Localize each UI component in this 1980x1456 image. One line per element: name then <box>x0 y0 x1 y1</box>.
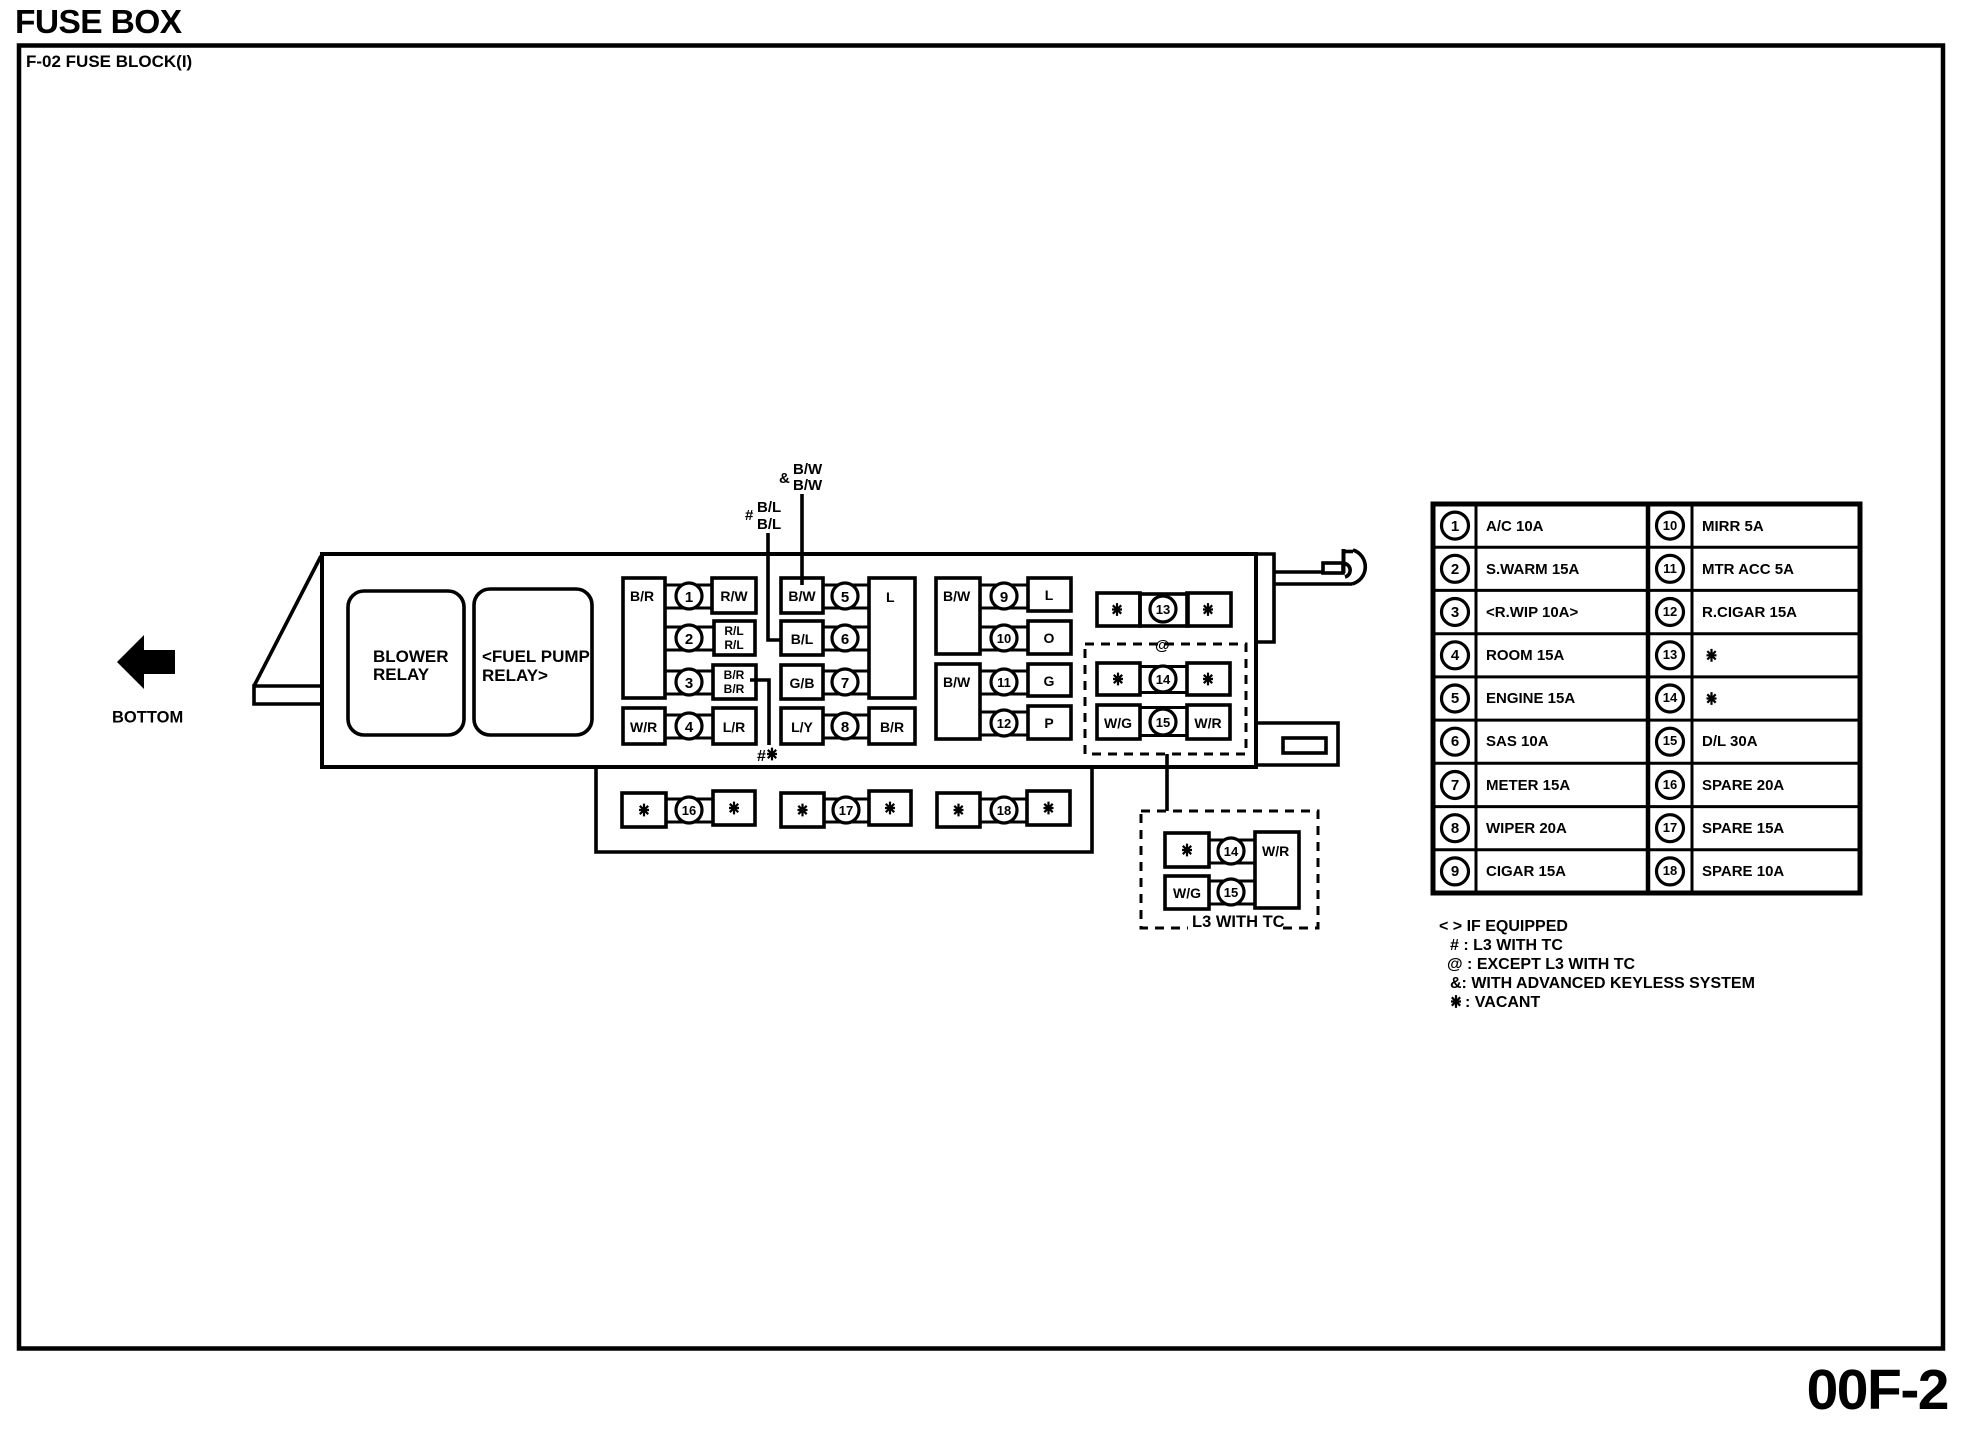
svg-text:MIRR 5A: MIRR 5A <box>1702 518 1764 535</box>
svg-text:SAS 10A: SAS 10A <box>1486 733 1549 750</box>
svg-text:BOTTOM: BOTTOM <box>112 709 183 727</box>
svg-text:6: 6 <box>841 631 849 648</box>
svg-text:B/L: B/L <box>757 516 781 533</box>
svg-text:6: 6 <box>1451 733 1459 750</box>
svg-text:FUSE BOX: FUSE BOX <box>15 4 183 41</box>
svg-text:CIGAR 15A: CIGAR 15A <box>1486 863 1566 880</box>
svg-text:W/R: W/R <box>1262 843 1289 859</box>
svg-text:L/R: L/R <box>723 719 746 735</box>
svg-text:P: P <box>1044 715 1053 731</box>
svg-text:B/W: B/W <box>943 588 971 604</box>
svg-text:7: 7 <box>841 675 849 692</box>
svg-text:G: G <box>1044 673 1055 689</box>
svg-text:O: O <box>1044 630 1055 646</box>
svg-text:14: 14 <box>1156 672 1171 687</box>
svg-text:13: 13 <box>1156 602 1170 617</box>
svg-text:ROOM 15A: ROOM 15A <box>1486 647 1565 664</box>
svg-text:12: 12 <box>1663 604 1677 619</box>
svg-text:11: 11 <box>1663 561 1677 576</box>
svg-text:B/R: B/R <box>724 668 745 682</box>
svg-text:16: 16 <box>1663 777 1677 792</box>
svg-text:18: 18 <box>1663 863 1677 878</box>
svg-text:#: # <box>745 507 754 524</box>
svg-text:S.WARM 15A: S.WARM 15A <box>1486 561 1580 578</box>
svg-text:16: 16 <box>682 803 696 818</box>
svg-text:10: 10 <box>1663 518 1677 533</box>
svg-text:<R.WIP 10A>: <R.WIP 10A> <box>1486 604 1579 621</box>
svg-text:R.CIGAR 15A: R.CIGAR 15A <box>1702 604 1797 621</box>
svg-text:< > IF EQUIPPED: < > IF EQUIPPED <box>1439 918 1568 935</box>
svg-text:7: 7 <box>1451 777 1459 794</box>
svg-text:A/C 10A: A/C 10A <box>1486 518 1544 535</box>
svg-text:18: 18 <box>997 803 1011 818</box>
svg-text:SPARE 20A: SPARE 20A <box>1702 777 1784 794</box>
svg-text:&: & <box>779 470 790 487</box>
svg-text:B/W: B/W <box>943 674 971 690</box>
svg-text:WIPER 20A: WIPER 20A <box>1486 820 1567 837</box>
svg-text:10: 10 <box>997 631 1011 646</box>
svg-text:5: 5 <box>841 589 849 606</box>
svg-text:# : L3 WITH TC: # : L3 WITH TC <box>1450 937 1563 954</box>
svg-text:3: 3 <box>685 675 693 692</box>
svg-text:8: 8 <box>1451 820 1459 837</box>
svg-text:B/W: B/W <box>788 588 816 604</box>
svg-text:#: # <box>757 748 766 765</box>
svg-text:ENGINE 15A: ENGINE 15A <box>1486 690 1575 707</box>
svg-text:L: L <box>886 589 895 605</box>
svg-text:17: 17 <box>839 803 853 818</box>
svg-text:&: WITH ADVANCED KEYLESS SYSTE: &: WITH ADVANCED KEYLESS SYSTEM <box>1450 975 1755 992</box>
svg-text:SPARE 15A: SPARE 15A <box>1702 820 1784 837</box>
svg-text:17: 17 <box>1663 820 1677 835</box>
svg-text:11: 11 <box>997 675 1011 690</box>
svg-text:B/W: B/W <box>793 477 823 494</box>
svg-text:14: 14 <box>1224 844 1239 859</box>
svg-text:15: 15 <box>1663 733 1677 748</box>
svg-text:: VACANT: : VACANT <box>1465 994 1540 1011</box>
svg-text:<FUEL PUMP: <FUEL PUMP <box>482 647 590 666</box>
svg-text:W/G: W/G <box>1104 715 1132 731</box>
svg-text:4: 4 <box>1451 647 1460 664</box>
svg-text:R/W: R/W <box>720 588 748 604</box>
svg-text:MTR ACC 5A: MTR ACC 5A <box>1702 561 1794 578</box>
svg-text:B/L: B/L <box>757 499 781 516</box>
svg-text:1: 1 <box>1451 518 1459 535</box>
svg-text:B/W: B/W <box>793 461 823 478</box>
svg-text:R/L: R/L <box>724 638 743 652</box>
svg-text:D/L 30A: D/L 30A <box>1702 733 1758 750</box>
svg-text:15: 15 <box>1224 885 1238 900</box>
svg-text:00F-2: 00F-2 <box>1807 1358 1948 1422</box>
svg-text:4: 4 <box>685 719 694 736</box>
svg-text:F-02 FUSE BLOCK(I): F-02 FUSE BLOCK(I) <box>26 52 192 71</box>
svg-text:L/Y: L/Y <box>791 719 813 735</box>
svg-text:METER 15A: METER 15A <box>1486 777 1570 794</box>
svg-text:3: 3 <box>1451 604 1459 621</box>
svg-text:RELAY>: RELAY> <box>482 666 548 685</box>
svg-text:@ : EXCEPT L3 WITH TC: @ : EXCEPT L3 WITH TC <box>1447 956 1635 973</box>
svg-text:W/R: W/R <box>630 719 657 735</box>
svg-text:B/L: B/L <box>791 631 814 647</box>
svg-text:B/R: B/R <box>630 588 654 604</box>
svg-text:12: 12 <box>997 716 1011 731</box>
svg-text:9: 9 <box>1000 589 1008 606</box>
svg-text:2: 2 <box>1451 561 1459 578</box>
svg-text:BLOWER: BLOWER <box>373 647 449 666</box>
svg-text:2: 2 <box>685 631 693 648</box>
svg-text:1: 1 <box>685 589 693 606</box>
svg-text:14: 14 <box>1663 690 1678 705</box>
svg-text:5: 5 <box>1451 690 1459 707</box>
svg-text:9: 9 <box>1451 863 1459 880</box>
svg-text:15: 15 <box>1156 715 1170 730</box>
svg-text:W/R: W/R <box>1194 715 1221 731</box>
svg-text:G/B: G/B <box>790 675 815 691</box>
svg-text:13: 13 <box>1663 647 1677 662</box>
svg-text:L3 WITH TC: L3 WITH TC <box>1192 913 1285 931</box>
svg-text:L: L <box>1045 587 1054 603</box>
svg-text:B/R: B/R <box>880 719 904 735</box>
svg-text:SPARE 10A: SPARE 10A <box>1702 863 1784 880</box>
svg-text:B/R: B/R <box>724 682 745 696</box>
svg-text:W/G: W/G <box>1173 885 1201 901</box>
svg-text:8: 8 <box>841 719 849 736</box>
svg-text:RELAY: RELAY <box>373 665 430 684</box>
svg-text:R/L: R/L <box>724 624 743 638</box>
